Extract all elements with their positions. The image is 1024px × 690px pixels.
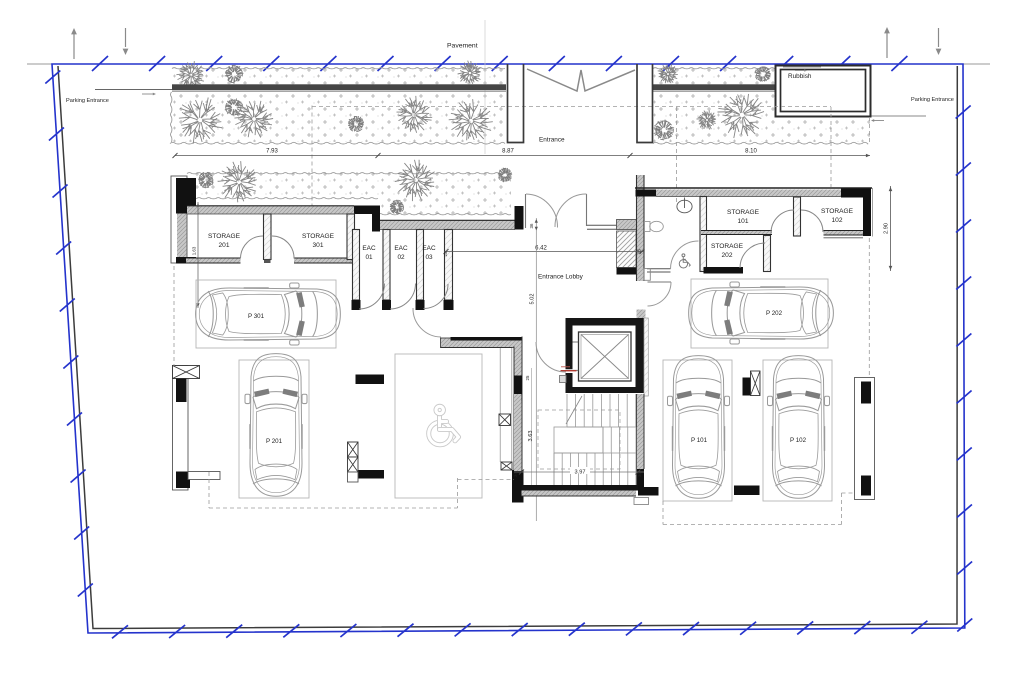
svg-text:Entrance: Entrance <box>539 137 565 144</box>
svg-text:201: 201 <box>218 242 229 249</box>
svg-text:25: 25 <box>637 249 642 254</box>
svg-text:5.02: 5.02 <box>530 294 536 305</box>
svg-text:7.93: 7.93 <box>266 149 278 155</box>
svg-text:3.97: 3.97 <box>575 470 586 476</box>
svg-text:8.87: 8.87 <box>502 149 514 155</box>
svg-text:P 102: P 102 <box>790 437 807 444</box>
svg-text:03: 03 <box>425 254 433 261</box>
svg-text:EAC: EAC <box>362 245 376 252</box>
svg-text:202: 202 <box>721 252 732 259</box>
svg-text:EAC: EAC <box>394 245 408 252</box>
svg-text:6.42: 6.42 <box>535 246 547 252</box>
svg-text:36: 36 <box>513 472 518 477</box>
svg-text:101: 101 <box>737 218 748 225</box>
svg-text:3.63: 3.63 <box>528 431 534 442</box>
svg-text:2.90: 2.90 <box>884 223 890 234</box>
svg-text:25: 25 <box>443 251 448 256</box>
svg-text:P 202: P 202 <box>766 310 783 317</box>
svg-text:Pavement: Pavement <box>447 43 478 50</box>
svg-text:102: 102 <box>831 217 842 224</box>
svg-text:STORAGE: STORAGE <box>821 208 854 215</box>
svg-text:1.63: 1.63 <box>192 246 197 255</box>
svg-text:STORAGE: STORAGE <box>727 209 760 216</box>
svg-text:Rubbish: Rubbish <box>788 73 812 80</box>
svg-text:STORAGE: STORAGE <box>711 243 744 250</box>
svg-text:301: 301 <box>312 242 323 249</box>
svg-text:Entrance Lobby: Entrance Lobby <box>538 274 584 281</box>
svg-text:STORAGE: STORAGE <box>208 233 241 240</box>
svg-text:01: 01 <box>365 254 373 261</box>
svg-text:P 201: P 201 <box>266 438 283 445</box>
svg-text:Parking Entrance: Parking Entrance <box>911 97 954 103</box>
svg-text:02: 02 <box>397 254 405 261</box>
svg-text:25: 25 <box>525 375 530 380</box>
svg-text:Parking Entrance: Parking Entrance <box>66 98 109 104</box>
svg-text:EAC: EAC <box>422 245 436 252</box>
svg-text:36: 36 <box>529 223 534 228</box>
svg-text:STORAGE: STORAGE <box>302 233 335 240</box>
svg-text:8.10: 8.10 <box>745 149 757 155</box>
svg-text:P 101: P 101 <box>691 437 708 444</box>
svg-text:P 301: P 301 <box>248 313 265 320</box>
svg-text:36: 36 <box>637 472 642 477</box>
